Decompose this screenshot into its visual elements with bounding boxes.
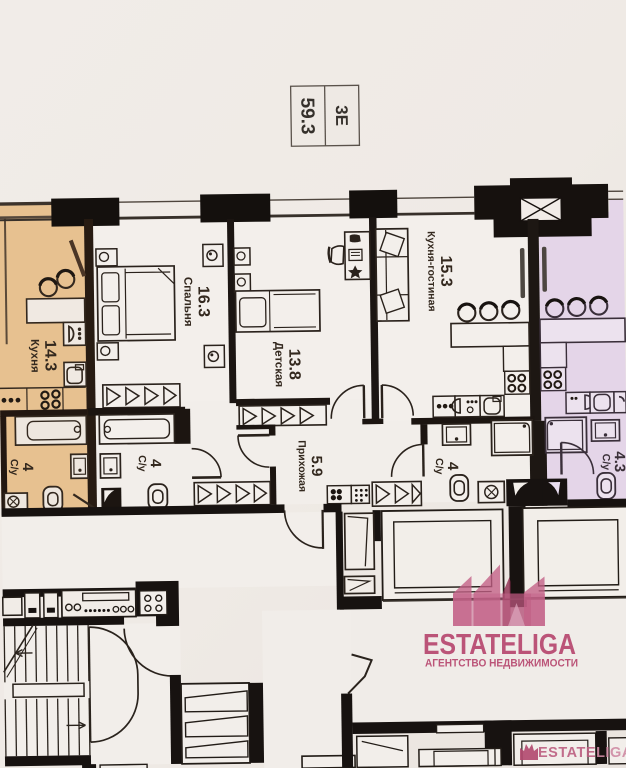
svg-text:ESTATELIGA: ESTATELIGA: [423, 629, 576, 661]
svg-text:5.9: 5.9: [308, 455, 325, 476]
svg-text:16.3: 16.3: [194, 286, 211, 317]
svg-text:14.3: 14.3: [41, 340, 58, 371]
svg-text:13.8: 13.8: [285, 349, 302, 380]
svg-text:Спальня: Спальня: [181, 277, 194, 327]
svg-text:С/у: С/у: [136, 455, 148, 472]
svg-text:3Е: 3Е: [332, 105, 351, 126]
svg-text:59.3: 59.3: [296, 97, 318, 134]
svg-text:С/у: С/у: [433, 458, 445, 475]
svg-text:С/у: С/у: [600, 454, 612, 471]
svg-text:4: 4: [147, 459, 164, 468]
svg-text:4.3: 4.3: [611, 451, 626, 472]
svg-text:Детская: Детская: [272, 342, 285, 387]
svg-text:Кухня: Кухня: [28, 339, 40, 373]
svg-text:С/у: С/у: [8, 459, 20, 476]
svg-text:ESTATELIGA: ESTATELIGA: [538, 745, 626, 761]
svg-text:Прихожая: Прихожая: [296, 440, 309, 492]
svg-text:АГЕНТСТВО НЕДВИЖИМОСТИ: АГЕНТСТВО НЕДВИЖИМОСТИ: [425, 658, 578, 670]
svg-text:Кухня-гостиная: Кухня-гостиная: [425, 231, 438, 312]
svg-text:15.3: 15.3: [437, 255, 454, 286]
svg-text:4: 4: [444, 462, 461, 471]
svg-text:4: 4: [19, 463, 36, 472]
